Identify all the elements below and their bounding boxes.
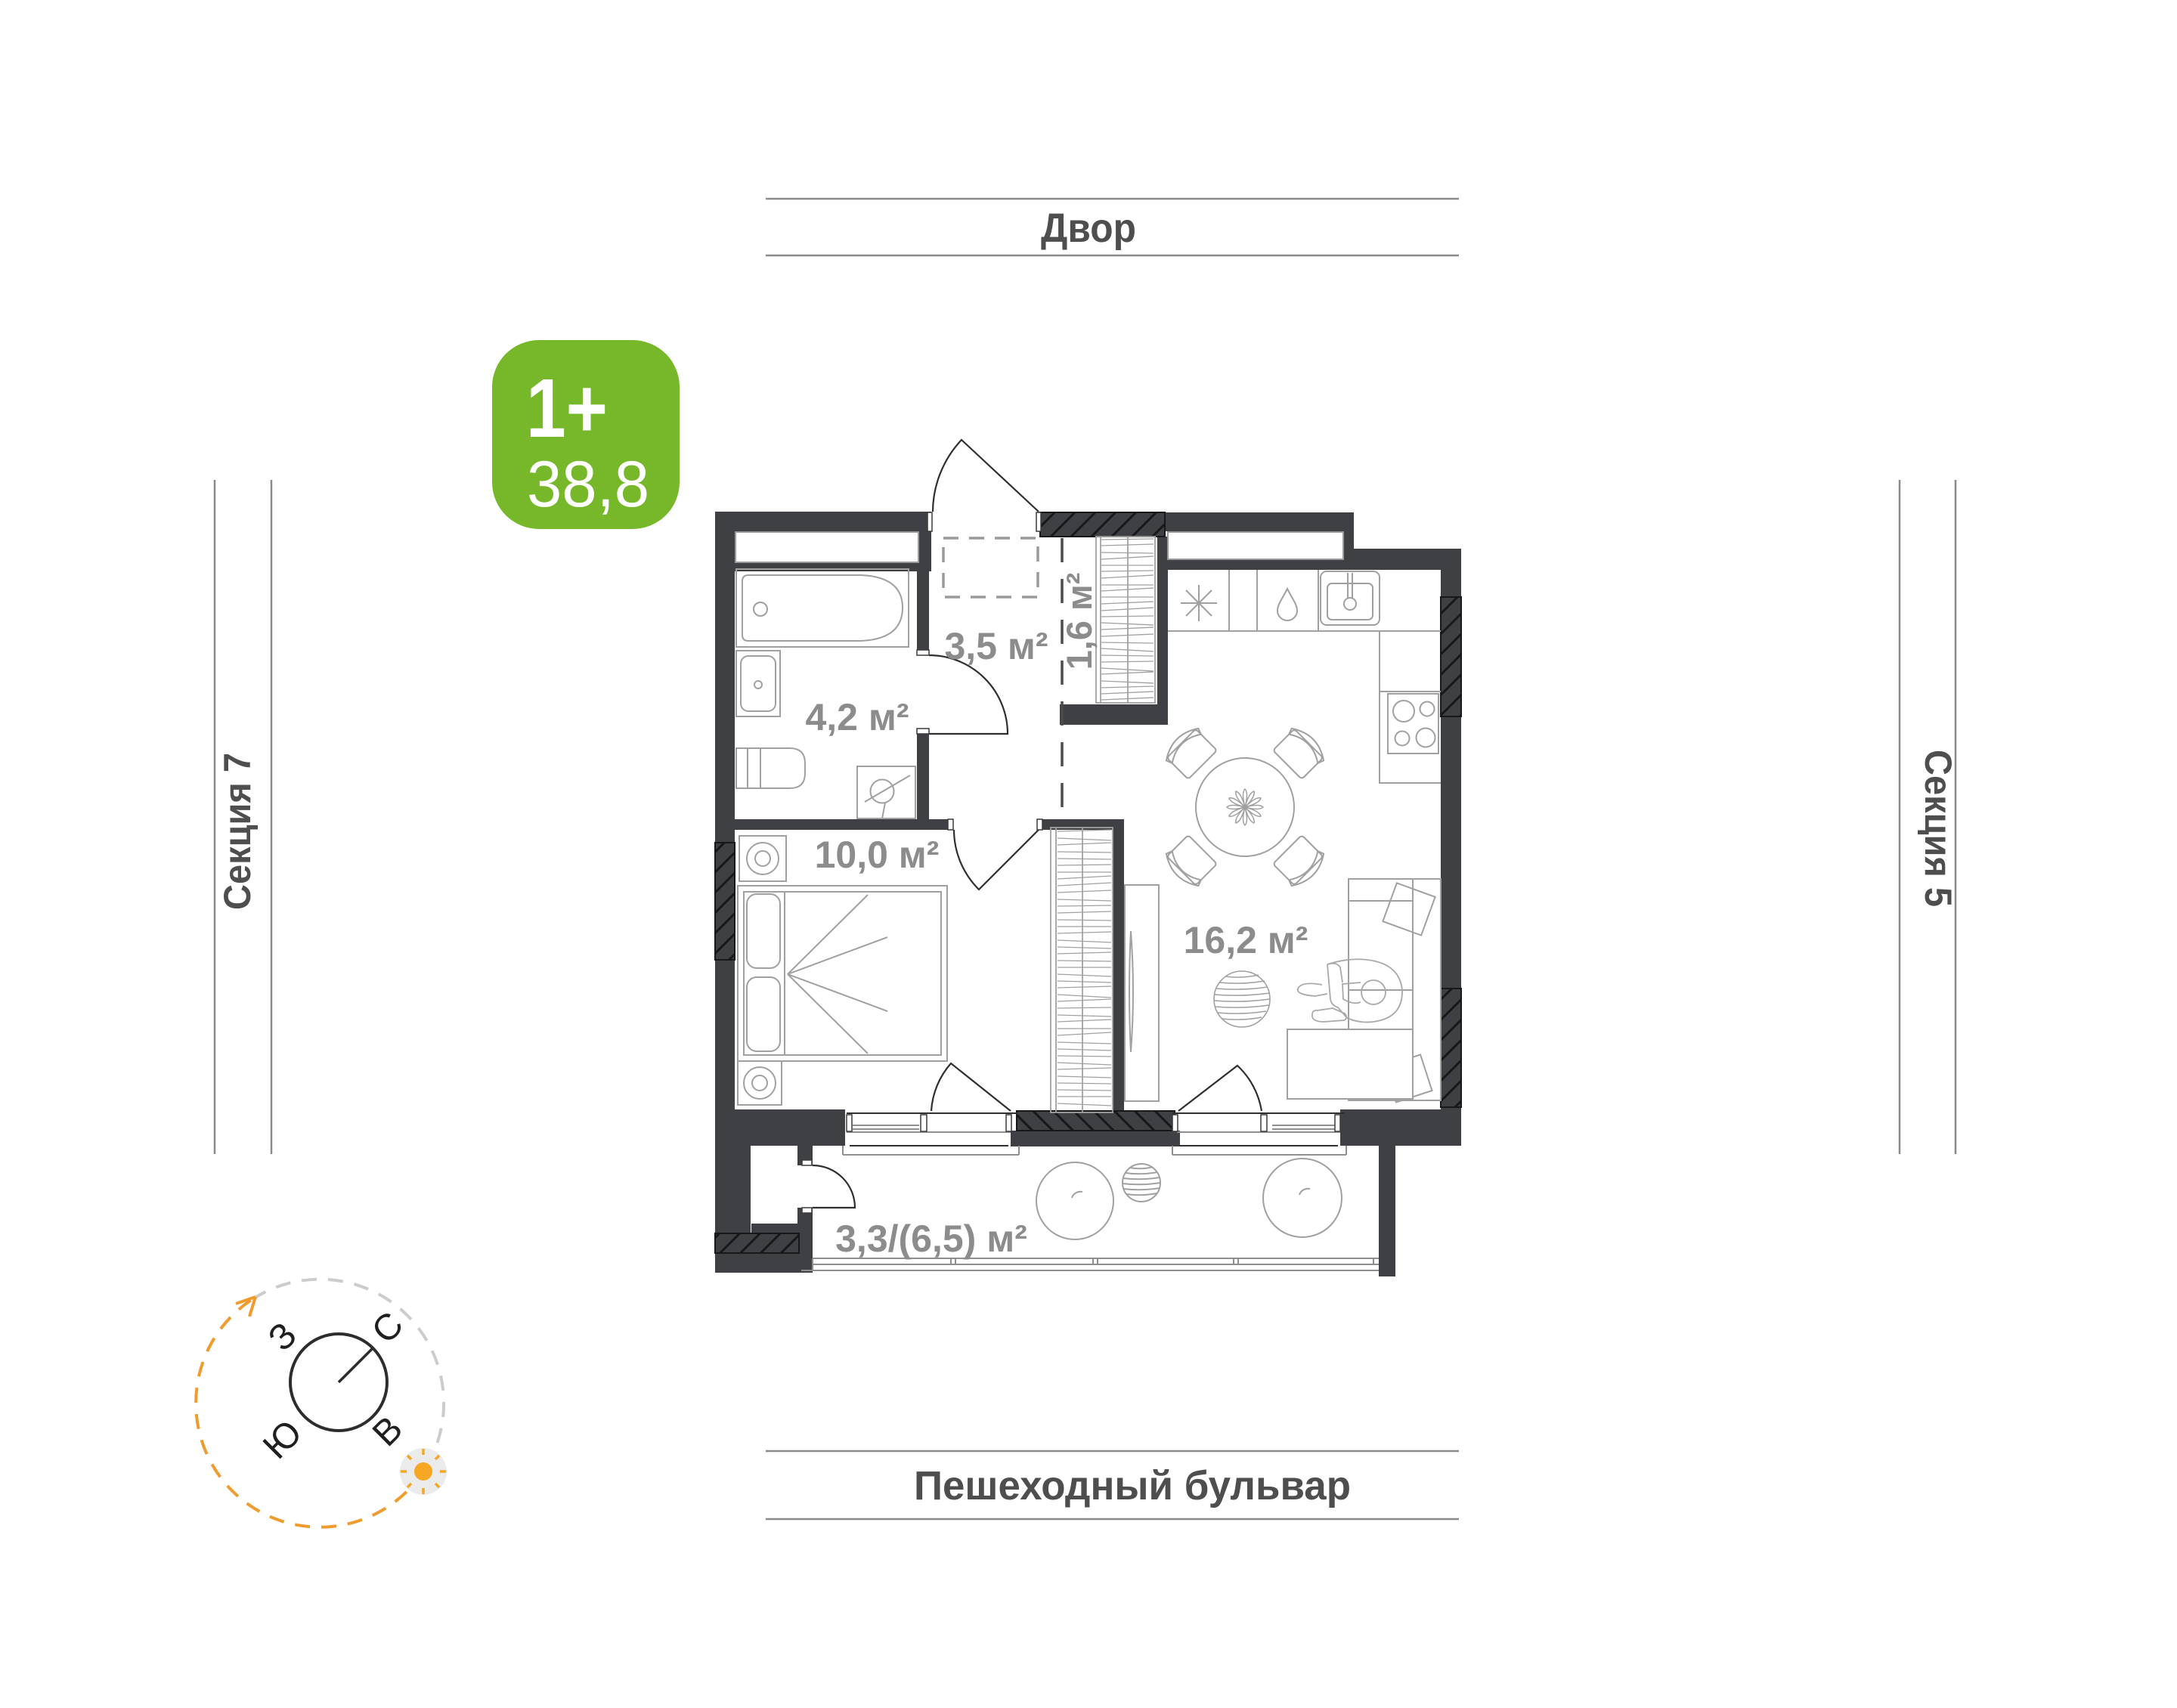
svg-text:1,6 м²: 1,6 м² (1059, 573, 1099, 670)
svg-text:Секция 5: Секция 5 (1917, 750, 1959, 907)
svg-text:10,0 м²: 10,0 м² (815, 834, 940, 876)
svg-text:1+: 1+ (526, 362, 608, 455)
svg-text:38,8: 38,8 (527, 448, 649, 521)
svg-text:3,3/(6,5) м²: 3,3/(6,5) м² (835, 1218, 1027, 1260)
svg-text:16,2 м²: 16,2 м² (1184, 919, 1308, 961)
svg-text:Двор: Двор (1041, 206, 1136, 251)
svg-text:Пешеходный бульвар: Пешеходный бульвар (914, 1463, 1351, 1508)
svg-text:3,5 м²: 3,5 м² (944, 625, 1048, 667)
svg-text:4,2 м²: 4,2 м² (805, 696, 909, 738)
svg-text:Секция 7: Секция 7 (216, 753, 259, 910)
